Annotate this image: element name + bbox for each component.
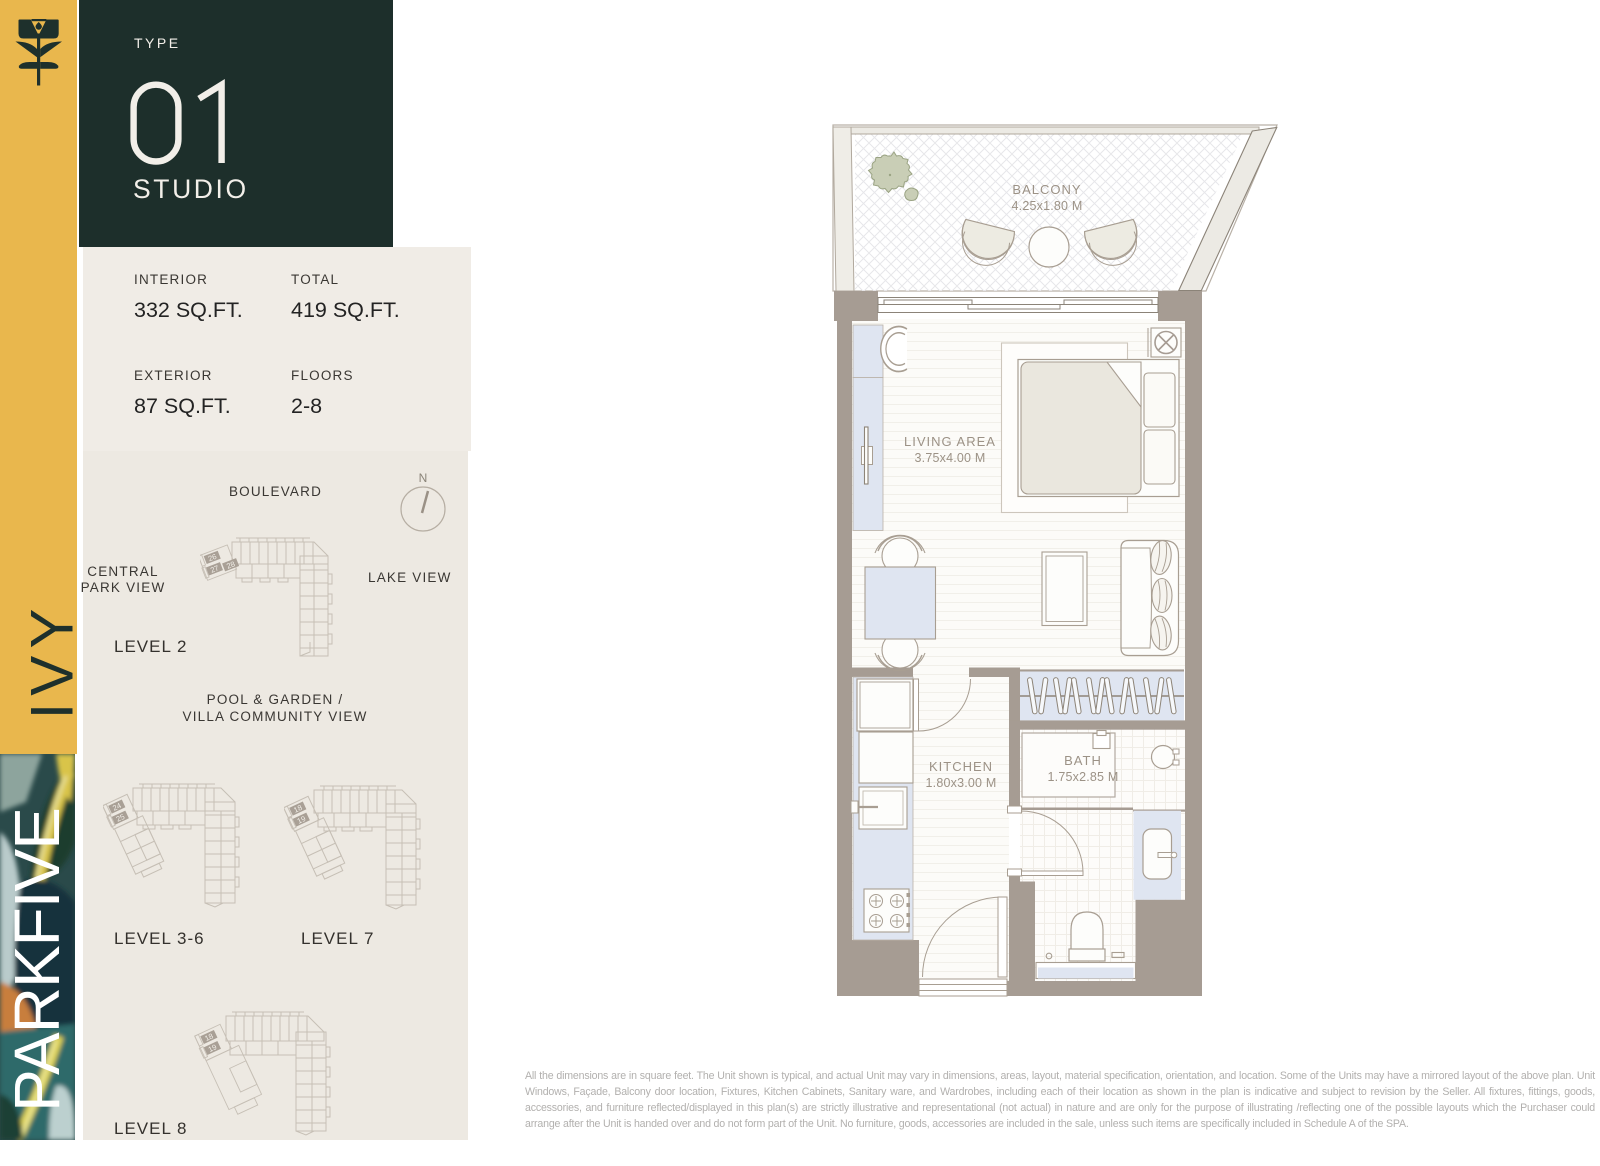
- svg-text:1.80x3.00 M: 1.80x3.00 M: [926, 776, 997, 790]
- svg-text:BALCONY: BALCONY: [1012, 182, 1081, 197]
- svg-text:BATH: BATH: [1064, 753, 1102, 768]
- svg-text:3.75x4.00 M: 3.75x4.00 M: [915, 451, 986, 465]
- svg-text:LIVING AREA: LIVING AREA: [904, 434, 996, 449]
- svg-text:N: N: [419, 471, 428, 485]
- svg-text:1.75x2.85 M: 1.75x2.85 M: [1048, 770, 1119, 784]
- svg-text:4.25x1.80 M: 4.25x1.80 M: [1012, 199, 1083, 213]
- svg-text:KITCHEN: KITCHEN: [929, 759, 993, 774]
